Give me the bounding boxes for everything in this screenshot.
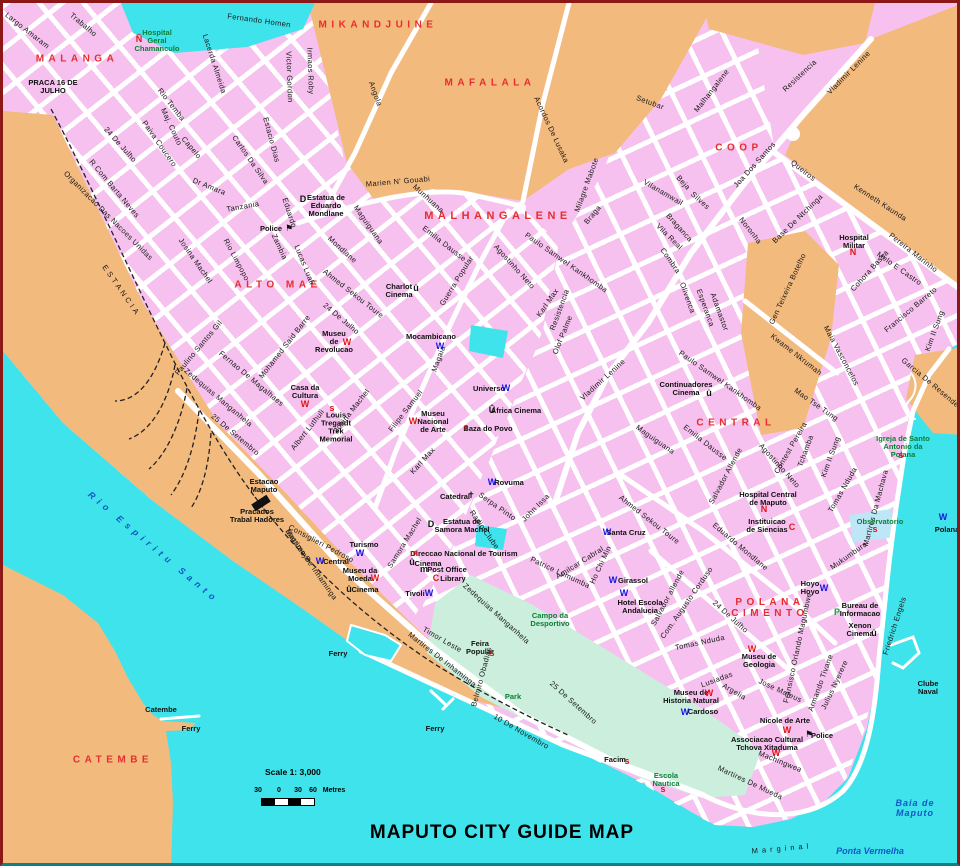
scale-unit: Metres (323, 787, 346, 794)
teixeira-botelho-area (741, 231, 839, 435)
roundabout (786, 127, 800, 141)
clube-naval-pier (891, 637, 919, 668)
catembe-pier (161, 716, 199, 719)
road-guerra-popular (375, 211, 508, 508)
catembe-land (3, 565, 196, 866)
pond-2 (475, 525, 507, 550)
top-strip (703, 3, 875, 55)
scale-bar (261, 798, 315, 806)
detail-layer (3, 3, 960, 866)
scale-indicator: Scale 1: 3,000 30 0 30 60 Metres (243, 765, 363, 813)
road-24-julho (651, 551, 797, 677)
campo-desportivo-area (427, 575, 761, 798)
mafalala-area (308, 3, 715, 201)
land-patches (3, 3, 960, 866)
lagoon (121, 3, 315, 53)
maputo-city-guide-map: MALANGAMIKANDJUINEMAFALALAMALHANGALENEAL… (0, 0, 960, 866)
map-title: MAPUTO CITY GUIDE MAP (370, 822, 634, 844)
roundabout (514, 202, 526, 214)
observatorio-pond (849, 509, 895, 543)
pond-1 (469, 325, 508, 358)
scale-label: Scale 1: 3,000 (265, 767, 321, 777)
